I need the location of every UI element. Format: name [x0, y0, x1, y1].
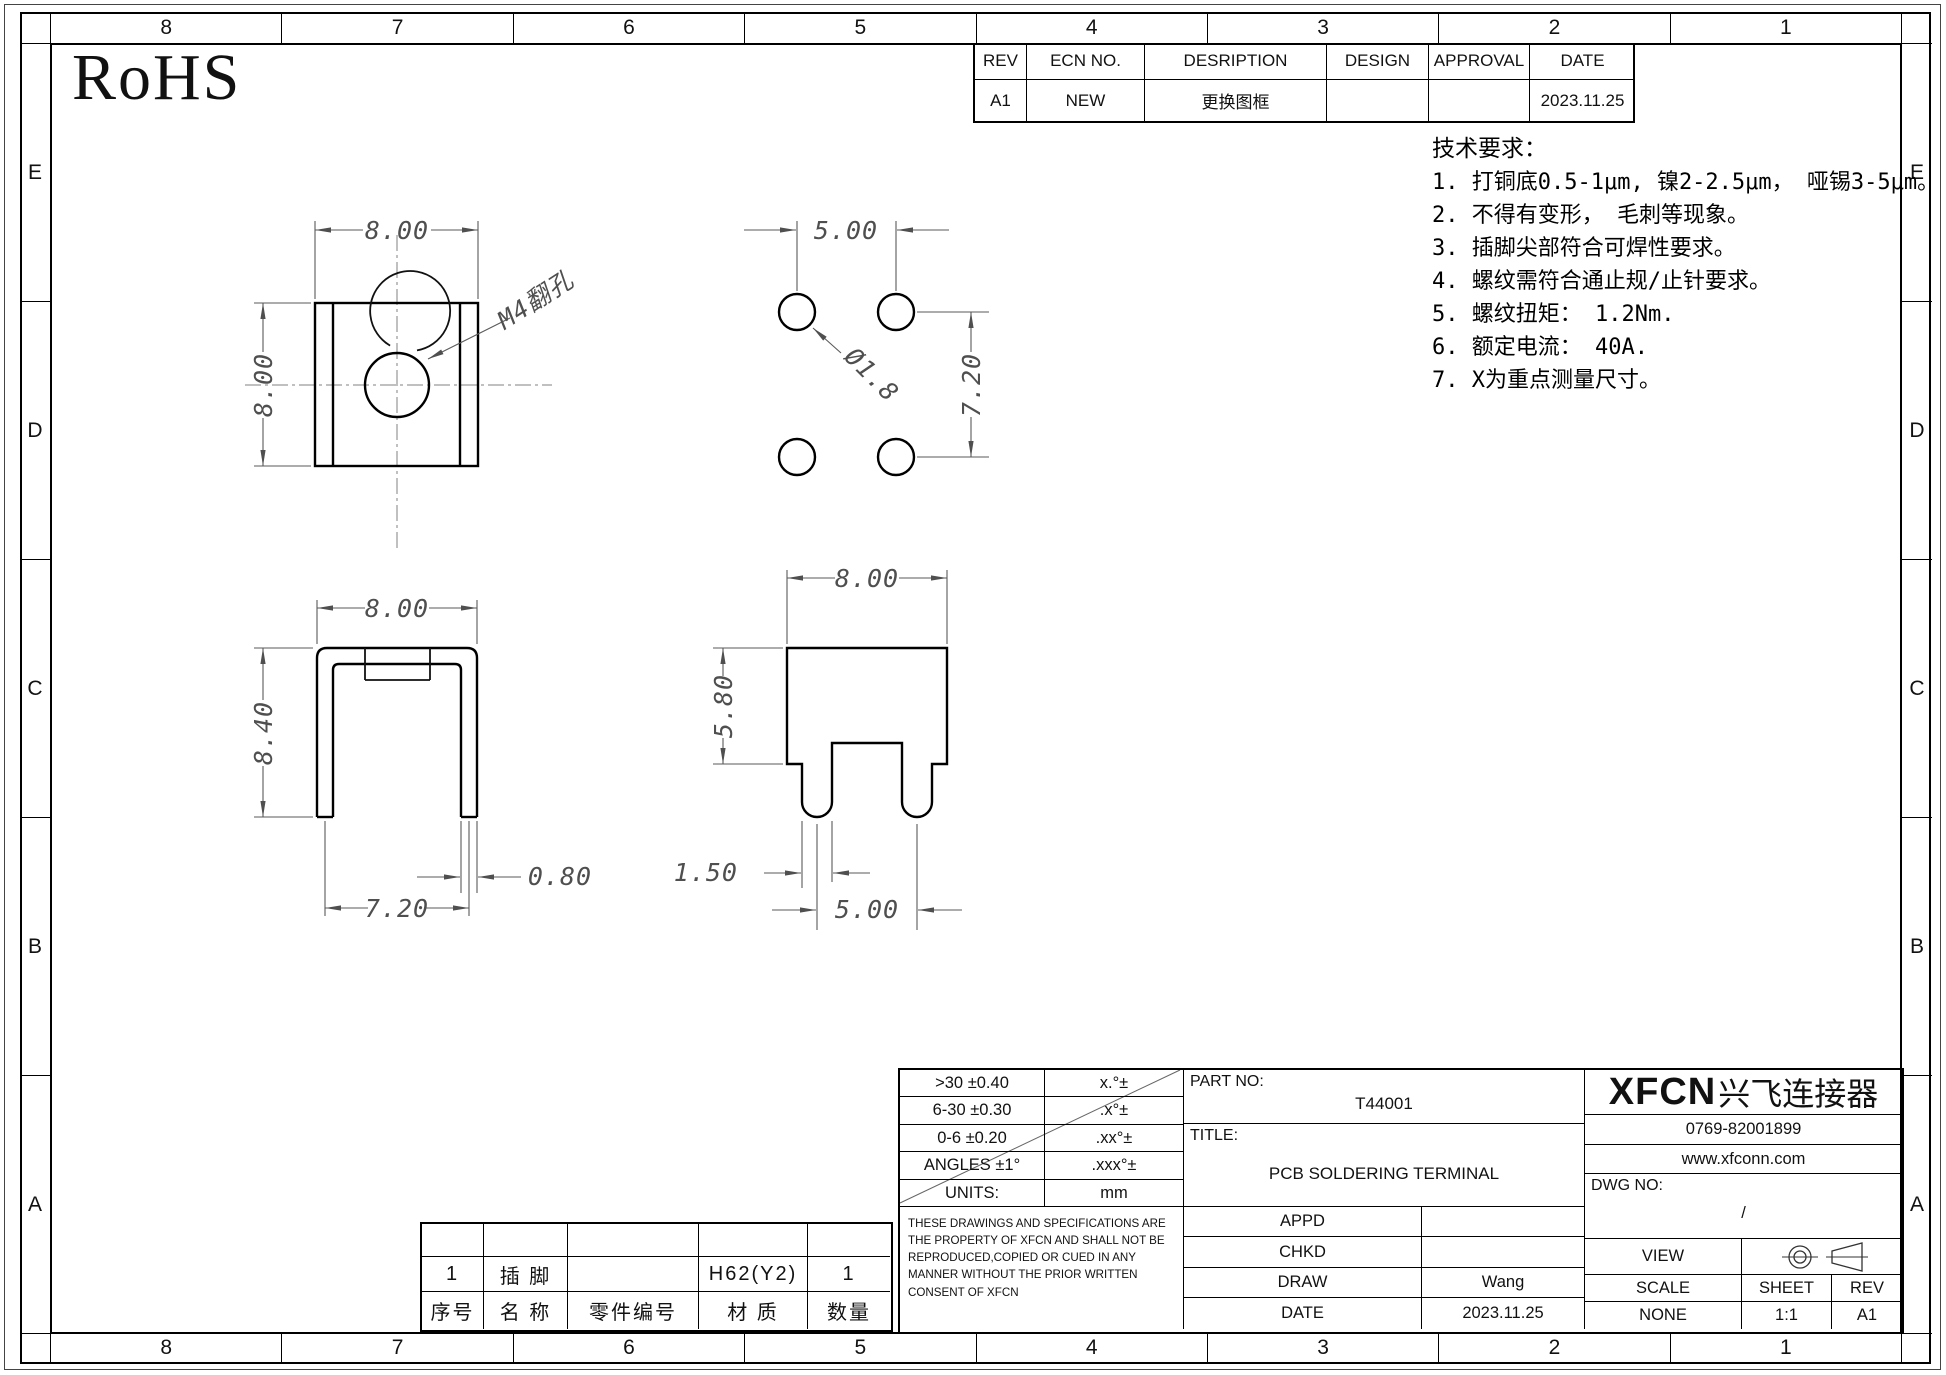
- dim-text: 7.20: [365, 894, 429, 923]
- date-value: 2023.11.25: [1422, 1298, 1584, 1329]
- dim-text: 5.80: [709, 674, 738, 738]
- view-side: 8.00 8.40 0.80 7.20: [249, 594, 592, 923]
- dim-text: Ø1.8: [839, 342, 905, 408]
- drawing-title: PCB SOLDERING TERMINAL: [1269, 1164, 1499, 1184]
- bom-header: 序号: [422, 1292, 484, 1329]
- appd-value: [1422, 1207, 1584, 1237]
- chkd-label: CHKD: [1184, 1237, 1422, 1268]
- tolerance-cell: mm: [1045, 1180, 1184, 1207]
- sheet-value: 1:1: [1742, 1302, 1832, 1329]
- bom-cell: H62(Y2): [699, 1257, 808, 1292]
- dim-text: 1.50: [674, 858, 738, 887]
- draw-value: Wang: [1422, 1268, 1584, 1298]
- bom-empty-cell: [568, 1224, 699, 1257]
- tolerance-cell: x.°±: [1045, 1070, 1184, 1097]
- bom-empty-cell: [422, 1224, 484, 1257]
- dim-text: 7.20: [957, 353, 986, 417]
- dim-text: 8.00: [365, 216, 429, 245]
- company-website: www.xfconn.com: [1584, 1145, 1902, 1174]
- bom-cell: 插 脚: [484, 1257, 568, 1292]
- title-block: >30 ±0.40 x.°± 6-30 ±0.30 .x°± 0-6 ±0.20…: [898, 1068, 1904, 1334]
- title-label: TITLE:: [1190, 1127, 1238, 1145]
- bom-header: 名 称: [484, 1292, 568, 1329]
- drawing-sheet: 8 7 6 5 4 3 2 1 8 7 6 5 4 3 2 1 E D C B …: [0, 0, 1946, 1375]
- bom-cell: [568, 1257, 699, 1292]
- part-no-label: PART NO:: [1190, 1073, 1264, 1091]
- bom-header: 数量: [808, 1292, 890, 1329]
- disclaimer-text: THESE DRAWINGS AND SPECIFICATIONS ARE TH…: [900, 1207, 1183, 1301]
- view-front: 8.00 5.80 1.50 5.00: [674, 564, 962, 930]
- bom-header: 材 质: [699, 1292, 808, 1329]
- tolerance-cell: ANGLES ±1°: [900, 1152, 1045, 1180]
- part-no-value: T44001: [1355, 1094, 1413, 1114]
- bom-table: 1 插 脚 H62(Y2) 1 序号 名 称 零件编号 材 质 数量: [420, 1222, 893, 1332]
- tolerance-cell: >30 ±0.40: [900, 1070, 1045, 1097]
- tolerance-cell: 6-30 ±0.30: [900, 1097, 1045, 1125]
- rev-value: A1: [1832, 1302, 1902, 1329]
- tolerance-cell: .xxx°±: [1045, 1152, 1184, 1180]
- dim-text: 8.40: [249, 701, 278, 765]
- date-label: DATE: [1184, 1298, 1422, 1329]
- view-label: VIEW: [1584, 1239, 1742, 1275]
- view-nut-top: 8.00 8.00 M4翻孔: [245, 216, 579, 548]
- rev-label: REV: [1832, 1275, 1902, 1302]
- bom-empty-cell: [484, 1224, 568, 1257]
- dim-text: 5.00: [814, 216, 878, 245]
- company-name: 兴飞连接器: [1718, 1069, 1878, 1115]
- bom-cell: 1: [808, 1257, 890, 1292]
- draw-label: DRAW: [1184, 1268, 1422, 1298]
- tolerance-cell: 0-6 ±0.20: [900, 1125, 1045, 1152]
- third-angle-projection-icon: [1762, 1240, 1882, 1274]
- dim-text: 8.00: [365, 594, 429, 623]
- appd-label: APPD: [1184, 1207, 1422, 1237]
- bom-empty-cell: [808, 1224, 890, 1257]
- bom-header: 零件编号: [568, 1292, 699, 1329]
- sheet-label: SHEET: [1742, 1275, 1832, 1302]
- company-phone: 0769-82001899: [1584, 1115, 1902, 1145]
- tolerance-cell: UNITS:: [900, 1180, 1045, 1207]
- scale-label: SCALE: [1584, 1275, 1742, 1302]
- dim-text: 0.80: [528, 862, 592, 891]
- bom-cell: 1: [422, 1257, 484, 1292]
- company-logo: XFCN: [1609, 1071, 1716, 1114]
- dim-text: 5.00: [835, 895, 899, 924]
- view-hole-pattern: 5.00 7.20 Ø1.8: [744, 216, 989, 475]
- bom-empty-cell: [699, 1224, 808, 1257]
- dwg-no-label: DWG NO:: [1591, 1177, 1663, 1195]
- dim-text: 8.00: [835, 564, 899, 593]
- tolerance-cell: .xx°±: [1045, 1125, 1184, 1152]
- hole-callout: M4翻孔: [492, 265, 579, 336]
- scale-value: NONE: [1584, 1302, 1742, 1329]
- thread-arc: [370, 271, 450, 350]
- dwg-no-value: /: [1741, 1204, 1746, 1223]
- dim-text: 8.00: [249, 353, 278, 417]
- chkd-value: [1422, 1237, 1584, 1268]
- tolerance-cell: .x°±: [1045, 1097, 1184, 1125]
